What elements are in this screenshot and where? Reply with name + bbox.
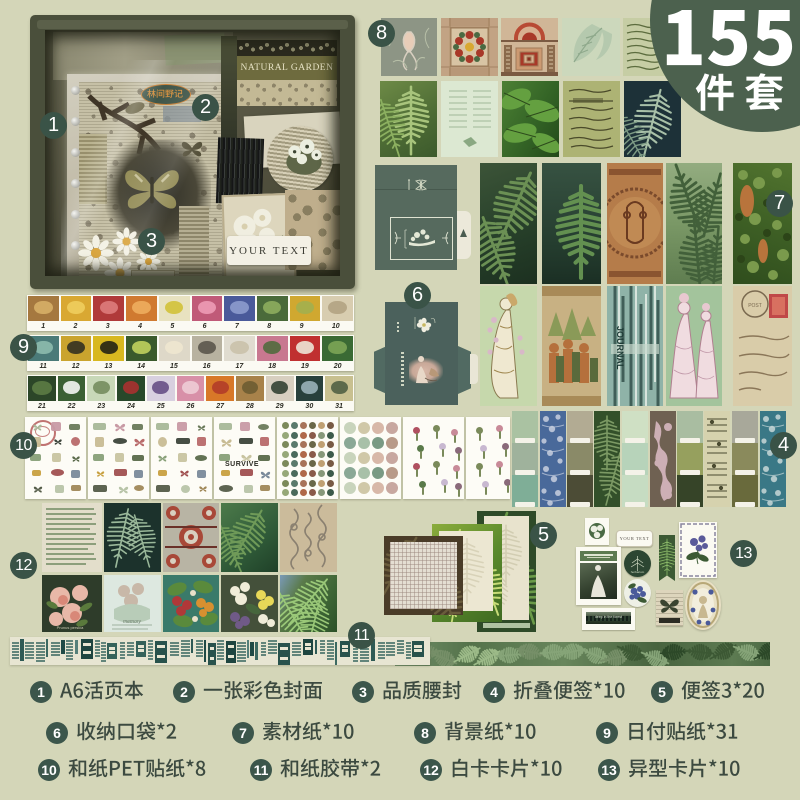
svg-text:memory: memory: [123, 619, 142, 625]
svg-text:Prunus persica: Prunus persica: [57, 625, 84, 630]
svg-text:JOURNAL: JOURNAL: [615, 326, 625, 370]
svg-text:POST: POST: [748, 303, 762, 309]
svg-text:herbarium: herbarium: [631, 570, 645, 574]
